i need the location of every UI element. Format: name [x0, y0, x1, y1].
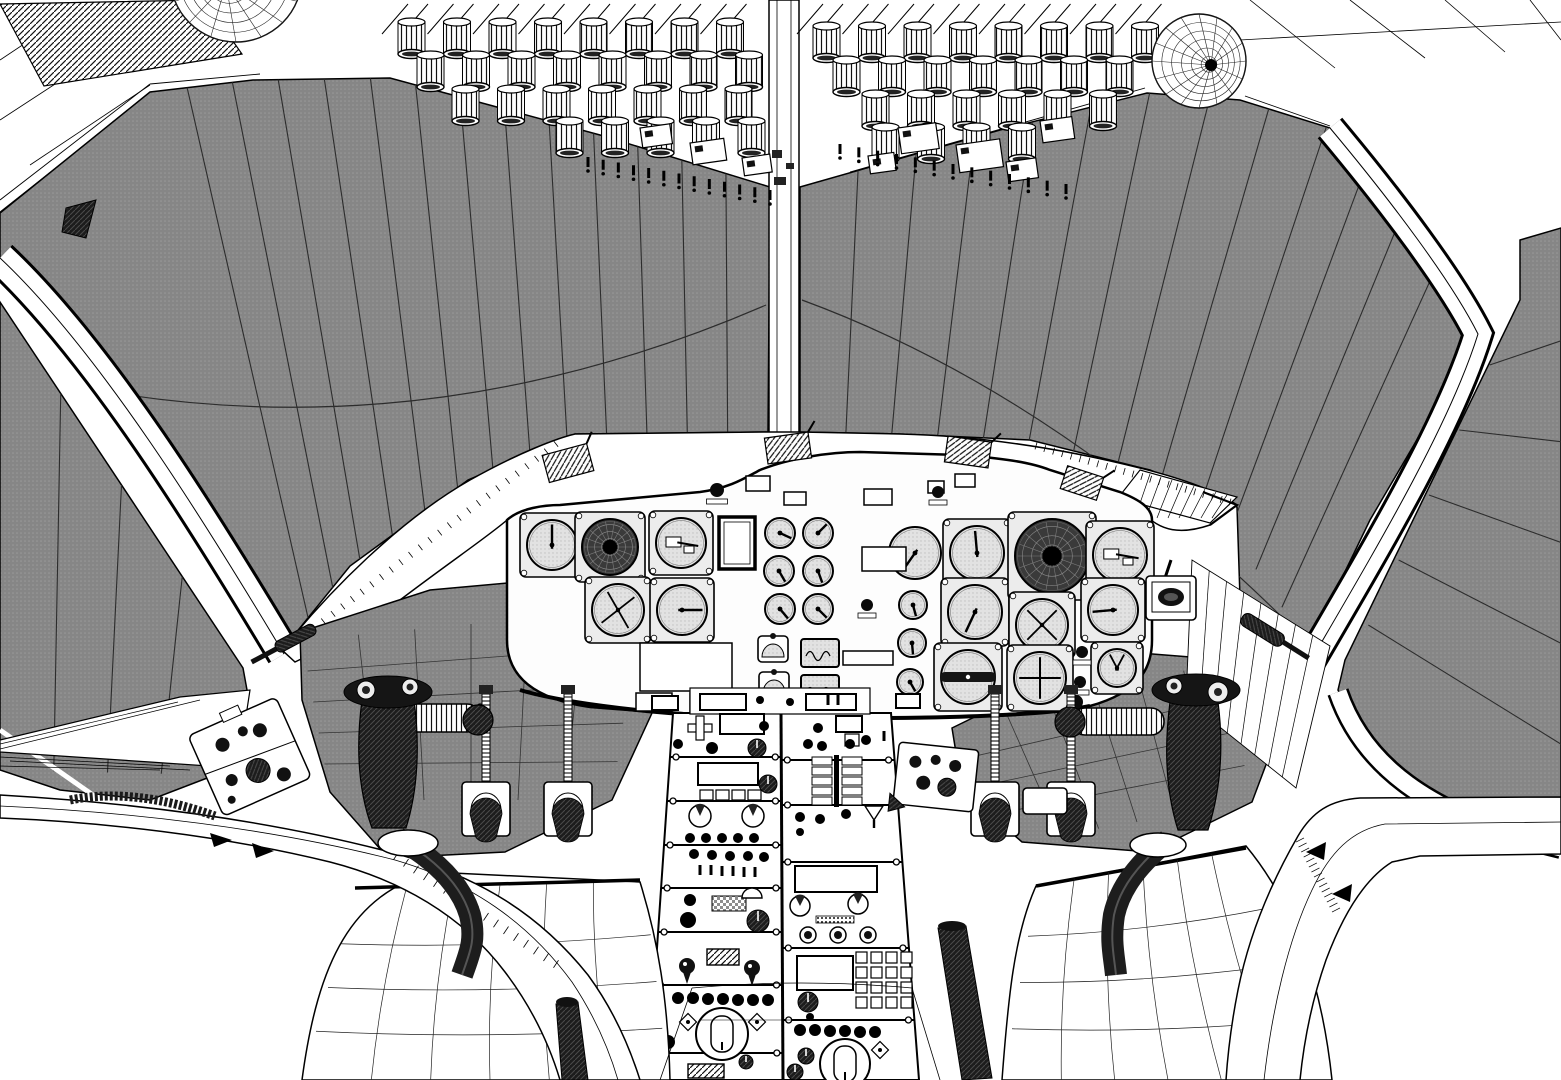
- overhead-toggle-switch: [952, 164, 955, 174]
- circle-shape: [913, 551, 918, 556]
- keypad-key: [871, 952, 882, 963]
- overhead-toggle-switch: [857, 147, 860, 157]
- panel-bolt: [785, 802, 791, 808]
- console-toggle: [710, 865, 713, 875]
- circle-shape: [864, 931, 872, 939]
- breaker-top: [725, 85, 752, 93]
- breaker-top: [953, 90, 980, 98]
- breaker-face: [651, 151, 670, 156]
- right-cyclic-boot-ring: [1130, 833, 1186, 857]
- radio-display: [698, 763, 758, 785]
- overhead-relay-box: [898, 123, 939, 154]
- panel-bolt: [667, 842, 673, 848]
- bezel-screw: [644, 578, 650, 584]
- overhead-toggle-switch: [839, 144, 842, 154]
- breaker-top: [452, 85, 479, 93]
- instrument-g: [899, 591, 927, 619]
- console-button: [809, 1024, 821, 1036]
- console-toggle: [721, 866, 724, 876]
- radio-display: [795, 866, 877, 892]
- overhead-relay-box: [868, 152, 896, 173]
- panel-knob: [932, 486, 944, 498]
- overhead-toggle-switch: [693, 176, 696, 186]
- circle-shape: [617, 175, 621, 179]
- circle-shape: [1027, 190, 1031, 194]
- breaker-top: [543, 85, 570, 93]
- console-toggle: [754, 867, 757, 877]
- breaker-top: [738, 117, 765, 125]
- panel-placard: [640, 643, 732, 691]
- breaker-face: [560, 151, 579, 156]
- bezel-screw: [1087, 522, 1093, 528]
- rect-shape: [1045, 123, 1054, 130]
- keypad-key: [901, 967, 912, 978]
- instrument-g: [803, 594, 833, 624]
- attitude-ball: [1042, 546, 1061, 565]
- pedal-strap: [979, 798, 1011, 842]
- overhead-toggle-switch: [989, 171, 992, 181]
- instrument-gx: [585, 577, 651, 643]
- overhead-toggle-switch: [970, 167, 973, 177]
- keypad-key: [886, 982, 897, 993]
- console-key: [700, 790, 713, 800]
- circle-shape: [778, 607, 783, 612]
- overhead-toggle-switch: [587, 157, 590, 167]
- circle-shape: [755, 1020, 759, 1024]
- radio-display: [806, 694, 856, 710]
- breaker-top: [554, 51, 581, 59]
- bezel-screw: [1009, 513, 1015, 519]
- console-toggle: [732, 866, 735, 876]
- console-toggle: [837, 695, 840, 705]
- circle-shape: [723, 194, 727, 198]
- overhead-toggle-switch: [678, 174, 681, 184]
- rect-shape: [858, 613, 876, 618]
- step-key: [812, 777, 832, 785]
- circle-shape: [683, 962, 687, 966]
- rect-shape: [1123, 558, 1133, 565]
- pedal-rod-cap: [561, 685, 575, 694]
- bezel-screw: [521, 570, 527, 576]
- step-key: [812, 757, 832, 765]
- overhead-toggle-switch: [876, 151, 879, 161]
- rect-shape: [707, 499, 728, 504]
- cross-switch: [696, 716, 704, 740]
- console-button: [732, 994, 744, 1006]
- instrument-sym: [649, 511, 713, 575]
- instrument-g: [941, 578, 1009, 646]
- bezel-screw: [1068, 593, 1074, 599]
- overhead-relay-box: [640, 124, 672, 148]
- breaker-face: [606, 151, 625, 156]
- circle-shape: [838, 156, 842, 160]
- panel-placard: [784, 492, 806, 505]
- overhead-toggle-switch: [914, 157, 917, 167]
- breaker-top: [1009, 123, 1036, 131]
- breaker-top: [1132, 22, 1159, 30]
- breaker-top: [1041, 22, 1068, 30]
- bezel-screw: [1082, 635, 1088, 641]
- post-hardware: [772, 150, 782, 158]
- step-key: [812, 767, 832, 775]
- pedal-rod-cap: [479, 685, 493, 694]
- rect-shape: [684, 546, 694, 553]
- circle-shape: [975, 551, 980, 556]
- collective-lever-cap: [938, 921, 966, 931]
- circle-shape: [771, 669, 777, 675]
- console-toggle: [743, 867, 746, 877]
- bezel-screw: [944, 520, 950, 526]
- rect-shape: [695, 145, 704, 152]
- bezel-screw: [521, 514, 527, 520]
- bezel-screw: [935, 704, 941, 710]
- panel-bolt: [772, 754, 778, 760]
- instrument-gy: [1091, 642, 1143, 694]
- step-key: [842, 757, 862, 765]
- breaker-face: [837, 90, 856, 95]
- bezel-screw: [1010, 593, 1016, 599]
- console-button: [815, 814, 825, 824]
- breaker-face: [742, 151, 761, 156]
- overhead-toggle-switch: [662, 171, 665, 181]
- console-knob: [796, 828, 804, 836]
- rect-shape: [1072, 708, 1164, 735]
- breaker-top: [693, 117, 720, 125]
- instrument-g: [803, 556, 833, 586]
- overhead-toggle-switch: [1027, 177, 1030, 187]
- instrument-g: [898, 629, 926, 657]
- bezel-screw: [586, 636, 592, 642]
- rect-shape: [764, 432, 811, 464]
- bezel-screw: [1002, 579, 1008, 585]
- circle-shape: [677, 186, 681, 190]
- bezel-screw: [1002, 639, 1008, 645]
- console-toggle: [883, 731, 886, 741]
- circle-shape: [895, 166, 899, 170]
- panel-bolt: [773, 842, 779, 848]
- console-knob: [756, 696, 764, 704]
- circle-shape: [911, 603, 916, 608]
- panel-placard: [843, 651, 893, 665]
- circle-shape: [748, 964, 752, 968]
- rect-shape: [834, 755, 839, 807]
- panel-knob: [1076, 646, 1088, 658]
- console-button: [689, 849, 699, 859]
- step-key: [842, 777, 862, 785]
- breaker-top: [556, 117, 583, 125]
- bezel-screw: [995, 644, 1001, 650]
- breaker-top: [995, 22, 1022, 30]
- pedal-rod: [564, 694, 572, 782]
- rect-shape: [929, 500, 947, 505]
- rect-shape: [645, 130, 654, 137]
- console-toggle: [827, 695, 830, 705]
- console-button: [786, 698, 794, 706]
- breaker-top: [599, 51, 626, 59]
- bezel-screw: [651, 635, 657, 641]
- rect-shape: [903, 130, 912, 137]
- panel-bolt: [784, 757, 790, 763]
- console-key: [748, 790, 761, 800]
- collective-elbow: [1055, 707, 1085, 737]
- console-button: [717, 833, 727, 843]
- circle-shape: [857, 160, 861, 164]
- bezel-screw: [1136, 687, 1142, 693]
- overhead-relay-box: [1040, 117, 1075, 143]
- overhead-toggle-switch: [1065, 184, 1068, 194]
- attitude-ball: [603, 540, 618, 555]
- console-button: [854, 1026, 866, 1038]
- overhead-toggle-switch: [738, 185, 741, 195]
- circle-shape: [908, 680, 913, 685]
- breaker-face: [502, 119, 521, 124]
- overhead-toggle-switch: [933, 161, 936, 171]
- breaker-top: [444, 18, 471, 26]
- circle-shape: [876, 163, 880, 167]
- instrument-rect: [719, 517, 755, 569]
- console-button: [747, 994, 759, 1006]
- breaker-top: [999, 90, 1026, 98]
- breaker-top: [963, 123, 990, 131]
- keypad-key: [886, 997, 897, 1008]
- instrument-arc: [758, 633, 788, 662]
- instrument-g: [765, 594, 795, 624]
- bezel-screw: [638, 513, 644, 519]
- breaker-top: [463, 51, 490, 59]
- circle-shape: [778, 531, 783, 536]
- circle-shape: [816, 607, 821, 612]
- circle-shape: [914, 170, 918, 174]
- breaker-top: [680, 85, 707, 93]
- instrument-att: [575, 512, 645, 582]
- instrument-g: [764, 556, 794, 586]
- bezel-screw: [650, 568, 656, 574]
- console-button: [841, 809, 851, 819]
- breaker-top: [872, 123, 899, 131]
- circle-shape: [601, 172, 605, 176]
- breaker-top: [398, 18, 425, 26]
- circle-shape: [647, 180, 651, 184]
- keypad-key: [856, 952, 867, 963]
- left-cyclic-boot-ring: [378, 830, 438, 856]
- overhead-toggle-switch: [602, 160, 605, 170]
- bezel-screw: [1138, 635, 1144, 641]
- rect-shape: [961, 147, 970, 154]
- bezel-screw: [1092, 687, 1098, 693]
- console-button: [795, 812, 805, 822]
- pedal-strap: [470, 798, 502, 842]
- bezel-screw: [586, 578, 592, 584]
- ellipse-shape: [1164, 593, 1178, 601]
- center-windshield-post: [769, 0, 799, 434]
- console-button: [803, 739, 813, 749]
- breaker-top: [1106, 56, 1133, 64]
- bezel-screw: [1008, 704, 1014, 710]
- bezel-screw: [706, 568, 712, 574]
- breaker-top: [580, 18, 607, 26]
- instrument-g: [765, 518, 795, 548]
- console-key: [732, 790, 745, 800]
- circle-shape: [662, 183, 666, 187]
- bezel-screw: [1092, 643, 1098, 649]
- keypad-key: [856, 997, 867, 1008]
- console-button: [749, 833, 759, 843]
- pedal-adjust-box: [1023, 788, 1067, 814]
- breaker-top: [535, 18, 562, 26]
- radio-display: [896, 694, 920, 708]
- panel-placard: [746, 476, 770, 491]
- console-button: [717, 993, 729, 1005]
- wireframe-dome-fan: [1152, 14, 1246, 108]
- bezel-screw: [1089, 513, 1095, 519]
- console-button: [707, 850, 717, 860]
- console-button: [702, 993, 714, 1005]
- breaker-face: [421, 85, 440, 90]
- breaker-top: [950, 22, 977, 30]
- circle-shape: [1045, 193, 1049, 197]
- circle-shape: [1040, 623, 1044, 627]
- collective-elbow: [463, 705, 493, 735]
- overhead-toggle-switch: [1046, 181, 1049, 191]
- rect-shape: [1011, 164, 1020, 171]
- breaker-top: [862, 90, 889, 98]
- console-button: [869, 1026, 881, 1038]
- dotted-strip: [816, 916, 854, 923]
- rect-shape: [724, 522, 750, 564]
- bezel-screw: [935, 644, 941, 650]
- bezel-screw: [1138, 579, 1144, 585]
- circle-shape: [692, 188, 696, 192]
- circle-shape: [770, 633, 776, 639]
- breaker-top: [908, 90, 935, 98]
- step-key: [812, 797, 832, 805]
- step-key: [842, 767, 862, 775]
- console-button: [817, 741, 827, 751]
- render-viewport: Monochrome wireframe 3D render of a heli…: [0, 0, 1561, 1080]
- console-indicator: [712, 896, 746, 911]
- circle-shape: [834, 931, 842, 939]
- bezel-screw: [707, 635, 713, 641]
- bezel-screw: [706, 512, 712, 518]
- instrument-g: [897, 669, 923, 695]
- circle-shape: [738, 197, 742, 201]
- circle-shape: [586, 169, 590, 173]
- instrument-g: [1081, 578, 1145, 642]
- breaker-top: [508, 51, 535, 59]
- breaker-top: [498, 85, 525, 93]
- circle-shape: [1111, 608, 1116, 613]
- keypad-key: [871, 967, 882, 978]
- instrument-g: [943, 519, 1011, 587]
- circle-shape: [951, 176, 955, 180]
- panel-placard: [862, 547, 906, 571]
- breaker-face: [456, 119, 475, 124]
- pedal-rod-cap: [988, 685, 1002, 694]
- breaker-top: [924, 56, 951, 64]
- cockpit-wireframe-render: [0, 0, 1561, 1080]
- keypad-key: [901, 952, 912, 963]
- trim-indicator: [801, 639, 839, 667]
- pedal-rod-cap: [1064, 685, 1078, 694]
- keypad-key: [856, 967, 867, 978]
- collective-twist-grip: [1055, 707, 1164, 737]
- breaker-top: [904, 22, 931, 30]
- panel-bolt: [886, 757, 892, 763]
- striped-placard: [707, 949, 739, 965]
- breaker-top: [736, 51, 763, 59]
- circle-shape: [989, 183, 993, 187]
- instrument-gc: [1007, 645, 1073, 711]
- console-knob: [813, 723, 823, 733]
- overhead-toggle-switch: [617, 163, 620, 173]
- circle-shape: [632, 177, 636, 181]
- breaker-top: [859, 22, 886, 30]
- console-button: [861, 735, 871, 745]
- circle-shape: [708, 191, 712, 195]
- console-button: [743, 851, 753, 861]
- breaker-top: [833, 56, 860, 64]
- bezel-screw: [1066, 646, 1072, 652]
- keypad-key: [871, 997, 882, 1008]
- radio-display: [720, 714, 764, 734]
- breaker-face: [1094, 124, 1113, 129]
- overhead-toggle-switch: [753, 187, 756, 197]
- console-button: [759, 721, 769, 731]
- console-knob: [684, 894, 696, 906]
- breaker-top: [1044, 90, 1071, 98]
- overhead-toggle-switch: [632, 165, 635, 175]
- breaker-top: [626, 18, 653, 26]
- breaker-top: [1086, 22, 1113, 30]
- console-knob: [680, 912, 696, 928]
- circle-shape: [878, 1048, 882, 1052]
- breaker-face: [922, 157, 941, 162]
- breaker-top: [671, 18, 698, 26]
- circle-shape: [550, 543, 555, 548]
- panel-bolt: [900, 945, 906, 951]
- bezel-screw: [651, 579, 657, 585]
- step-key: [842, 787, 862, 795]
- circle-shape: [680, 608, 685, 613]
- panel-bolt: [893, 859, 899, 865]
- breaker-top: [602, 117, 629, 125]
- console-key: [716, 790, 729, 800]
- console-knob: [673, 739, 683, 749]
- overhead-relay-box: [742, 154, 772, 176]
- radio-display: [836, 716, 862, 732]
- console-button: [672, 992, 684, 1004]
- console-button: [685, 833, 695, 843]
- circle-shape: [910, 641, 915, 646]
- breaker-top: [417, 51, 444, 59]
- breaker-top: [589, 85, 616, 93]
- circle-shape: [966, 675, 970, 679]
- console-button: [794, 1024, 806, 1036]
- circle-shape: [804, 931, 812, 939]
- console-button: [701, 833, 711, 843]
- panel-bolt: [773, 885, 779, 891]
- radio-display: [652, 696, 678, 710]
- circle-shape: [753, 199, 757, 203]
- circle-shape: [973, 610, 978, 615]
- keypad-key: [901, 997, 912, 1008]
- panel-bolt: [661, 929, 667, 935]
- panel-bolt: [774, 1050, 780, 1056]
- panel-bolt: [772, 798, 778, 804]
- circle-shape: [777, 569, 782, 574]
- overhead-toggle-switch: [708, 179, 711, 189]
- console-button: [762, 994, 774, 1006]
